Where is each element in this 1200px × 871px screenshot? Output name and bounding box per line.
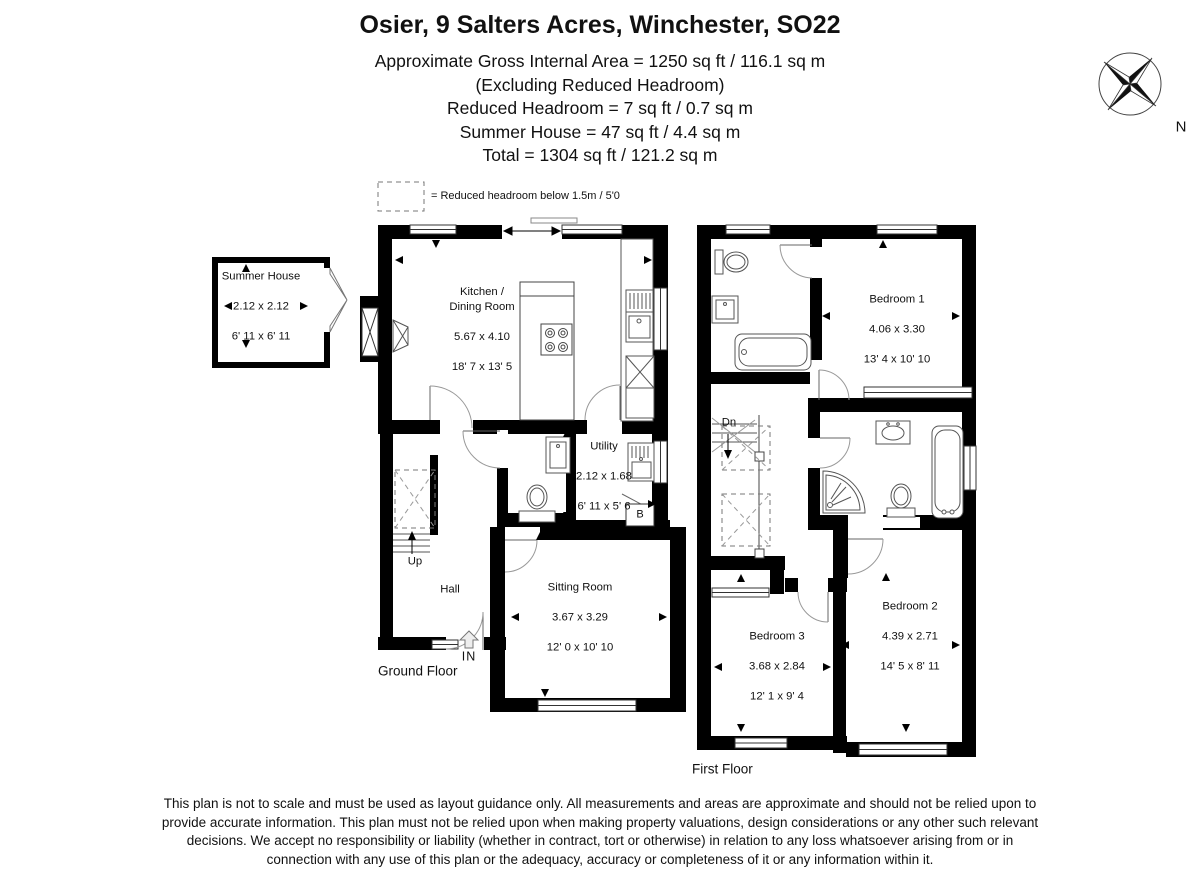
fireplace-icon: [393, 320, 408, 352]
room-dims-imperial: 6' 11 x 5' 6: [576, 500, 632, 515]
area-line: Summer House = 47 sq ft / 4.4 sq m: [0, 121, 1200, 145]
entrance-label: IN: [462, 650, 477, 665]
area-line: Reduced Headroom = 7 sq ft / 0.7 sq m: [0, 97, 1200, 121]
room-label-summer-house: Summer House 2.12 x 2.12 6' 11 x 6' 11: [222, 255, 300, 360]
stairs-up: [393, 470, 435, 554]
room-name: Utility: [576, 440, 632, 455]
ground-floor-label: Ground Floor: [378, 664, 458, 679]
ensuite-fixtures: [712, 250, 811, 370]
first-floor-label: First Floor: [692, 762, 753, 777]
room-dims-metric: 5.67 x 4.10: [449, 330, 514, 345]
room-dims-imperial: 13' 4 x 10' 10: [864, 353, 931, 368]
wc-fixtures: [519, 437, 570, 522]
room-name: Kitchen / Dining Room: [449, 285, 514, 315]
room-dims-metric: 3.68 x 2.84: [749, 660, 805, 675]
room-dims-metric: 3.67 x 3.29: [547, 611, 614, 626]
room-label-bedroom-3: Bedroom 3 3.68 x 2.84 12' 1 x 9' 4: [749, 615, 805, 720]
room-name: Summer House: [222, 270, 300, 285]
reduced-headroom-legend-icon: [378, 182, 424, 211]
page-title: Osier, 9 Salters Acres, Winchester, SO22: [0, 11, 1200, 40]
room-dims-imperial: 12' 0 x 10' 10: [547, 641, 614, 656]
kitchen-island: [520, 282, 574, 420]
hob-icon: [541, 324, 572, 355]
room-name: Bedroom 3: [749, 630, 805, 645]
area-line: Total = 1304 sq ft / 121.2 sq m: [0, 144, 1200, 168]
kitchen-sink-icon: [626, 290, 653, 342]
disclaimer-text: This plan is not to scale and must be us…: [0, 795, 1200, 869]
toilet-icon: [715, 250, 723, 274]
room-dims-imperial: 6' 11 x 6' 11: [222, 330, 300, 345]
compass-north-label: N: [1176, 119, 1187, 136]
room-name: Bedroom 2: [880, 600, 939, 615]
stairs-up-label: Up: [408, 555, 422, 570]
room-label-bedroom-1: Bedroom 1 4.06 x 3.30 13' 4 x 10' 10: [864, 278, 931, 383]
room-name: Bedroom 1: [864, 293, 931, 308]
room-dims-metric: 4.39 x 2.71: [880, 630, 939, 645]
room-label-hall: Hall: [440, 583, 459, 598]
room-dims-metric: 2.12 x 1.68: [576, 470, 632, 485]
room-label-sitting-room: Sitting Room 3.67 x 3.29 12' 0 x 10' 10: [547, 566, 614, 671]
room-label-utility: Utility 2.12 x 1.68 6' 11 x 5' 6: [576, 425, 632, 530]
room-label-kitchen-dining: Kitchen / Dining Room 5.67 x 4.10 18' 7 …: [449, 270, 514, 390]
area-line: (Excluding Reduced Headroom): [0, 74, 1200, 98]
stairs-down: [712, 415, 770, 558]
room-dims-metric: 4.06 x 3.30: [864, 323, 931, 338]
room-name: Sitting Room: [547, 581, 614, 596]
boiler-label: B: [636, 508, 643, 523]
floorplan-page: Osier, 9 Salters Acres, Winchester, SO22…: [0, 0, 1200, 871]
stairs-down-label: Dn: [722, 416, 736, 431]
area-line: Approximate Gross Internal Area = 1250 s…: [0, 50, 1200, 74]
room-dims-metric: 2.12 x 2.12: [222, 300, 300, 315]
kitchen-counter: [621, 239, 654, 421]
room-dims-imperial: 12' 1 x 9' 4: [749, 690, 805, 705]
bathroom-fixtures: [823, 421, 963, 518]
room-dims-imperial: 18' 7 x 13' 5: [449, 360, 514, 375]
room-label-bedroom-2: Bedroom 2 4.39 x 2.71 14' 5 x 8' 11: [880, 585, 939, 690]
area-summary: Approximate Gross Internal Area = 1250 s…: [0, 50, 1200, 168]
legend-reduced-headroom: = Reduced headroom below 1.5m / 5'0: [431, 190, 620, 202]
room-dims-imperial: 14' 5 x 8' 11: [880, 660, 939, 675]
